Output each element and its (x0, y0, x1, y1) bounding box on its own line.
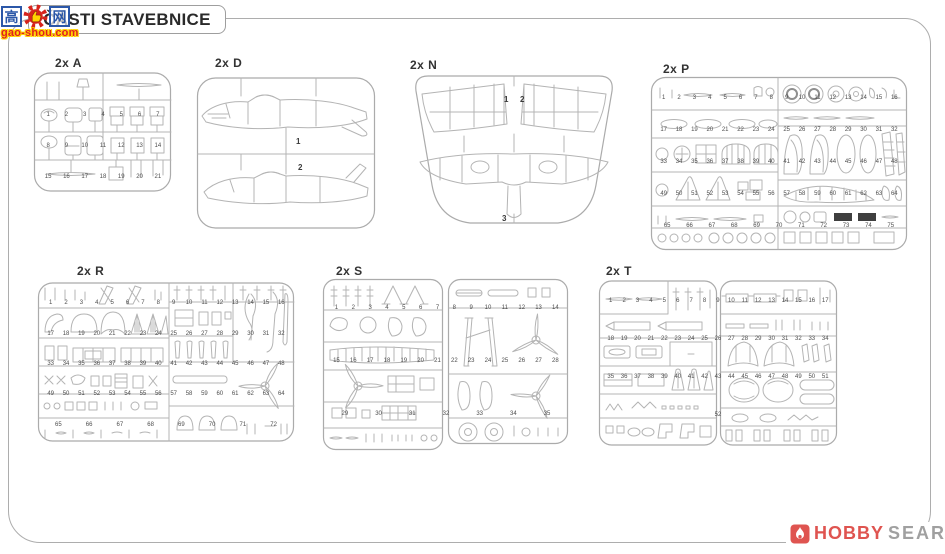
sprue-t: 2x T (598, 264, 838, 452)
wing-upper-right-drawing (521, 84, 606, 132)
sprue-a-label: 2x A (55, 56, 82, 70)
sprue-r-label: 2x R (77, 264, 104, 278)
sprue-n-drawing: 1 2 3 (410, 72, 618, 236)
sprue-p: 2x P (650, 62, 908, 252)
part-number: 2 (520, 95, 525, 104)
part-number: 3 (502, 214, 507, 223)
hobbysearch-watermark: HOBBY SEARCH (786, 522, 945, 545)
sprue-n-label: 2x N (410, 58, 437, 72)
sprue-p-drawing (650, 76, 908, 252)
sprue-s: 2x S (322, 264, 570, 458)
flame-icon (790, 524, 810, 544)
sprue-a-drawing (33, 70, 173, 194)
sprue-r-drawing (37, 278, 295, 448)
gaoshou-watermark: 高 网 gao-shou.com (1, 4, 93, 39)
gaoshou-domain-text: gao-shou.com (1, 27, 93, 39)
wing-upper-left-drawing (422, 84, 507, 132)
sprue-n: 2x N 1 2 3 (410, 58, 618, 236)
sprue-s-drawing (322, 278, 570, 458)
propeller-drawing (511, 374, 550, 419)
hobbysearch-word1: HOBBY (814, 523, 884, 544)
gaoshou-char-right: 网 (49, 6, 70, 27)
sprue-t-drawing (598, 278, 838, 452)
sprue-p-label: 2x P (663, 62, 690, 76)
sprue-d: 2x D 1 2 (196, 56, 376, 232)
hobbysearch-word2: SEARCH (888, 523, 945, 544)
sprue-d-label: 2x D (215, 56, 242, 70)
fuselage-half-top-drawing (202, 95, 367, 136)
gear-thumb-icon (23, 4, 48, 29)
sprue-d-drawing: 1 2 (196, 70, 376, 230)
instruction-sheet-page: { "page": { "title": "ČÁSTI STAVEBNICE",… (0, 0, 945, 554)
gaoshou-char-left: 高 (1, 6, 22, 27)
part-number: 1 (504, 95, 509, 104)
sprue-s-label: 2x S (336, 264, 363, 278)
sprue-a: 2x A 123456789101112131415161718192021 (33, 56, 173, 194)
part-number: 2 (298, 163, 303, 172)
propeller-drawing (512, 314, 559, 355)
propeller-drawing (239, 362, 281, 409)
part-number: 1 (296, 137, 301, 146)
sprue-r: 2x R (37, 264, 295, 448)
wing-lower-drawing (420, 154, 608, 218)
sprue-t-label: 2x T (606, 264, 632, 278)
